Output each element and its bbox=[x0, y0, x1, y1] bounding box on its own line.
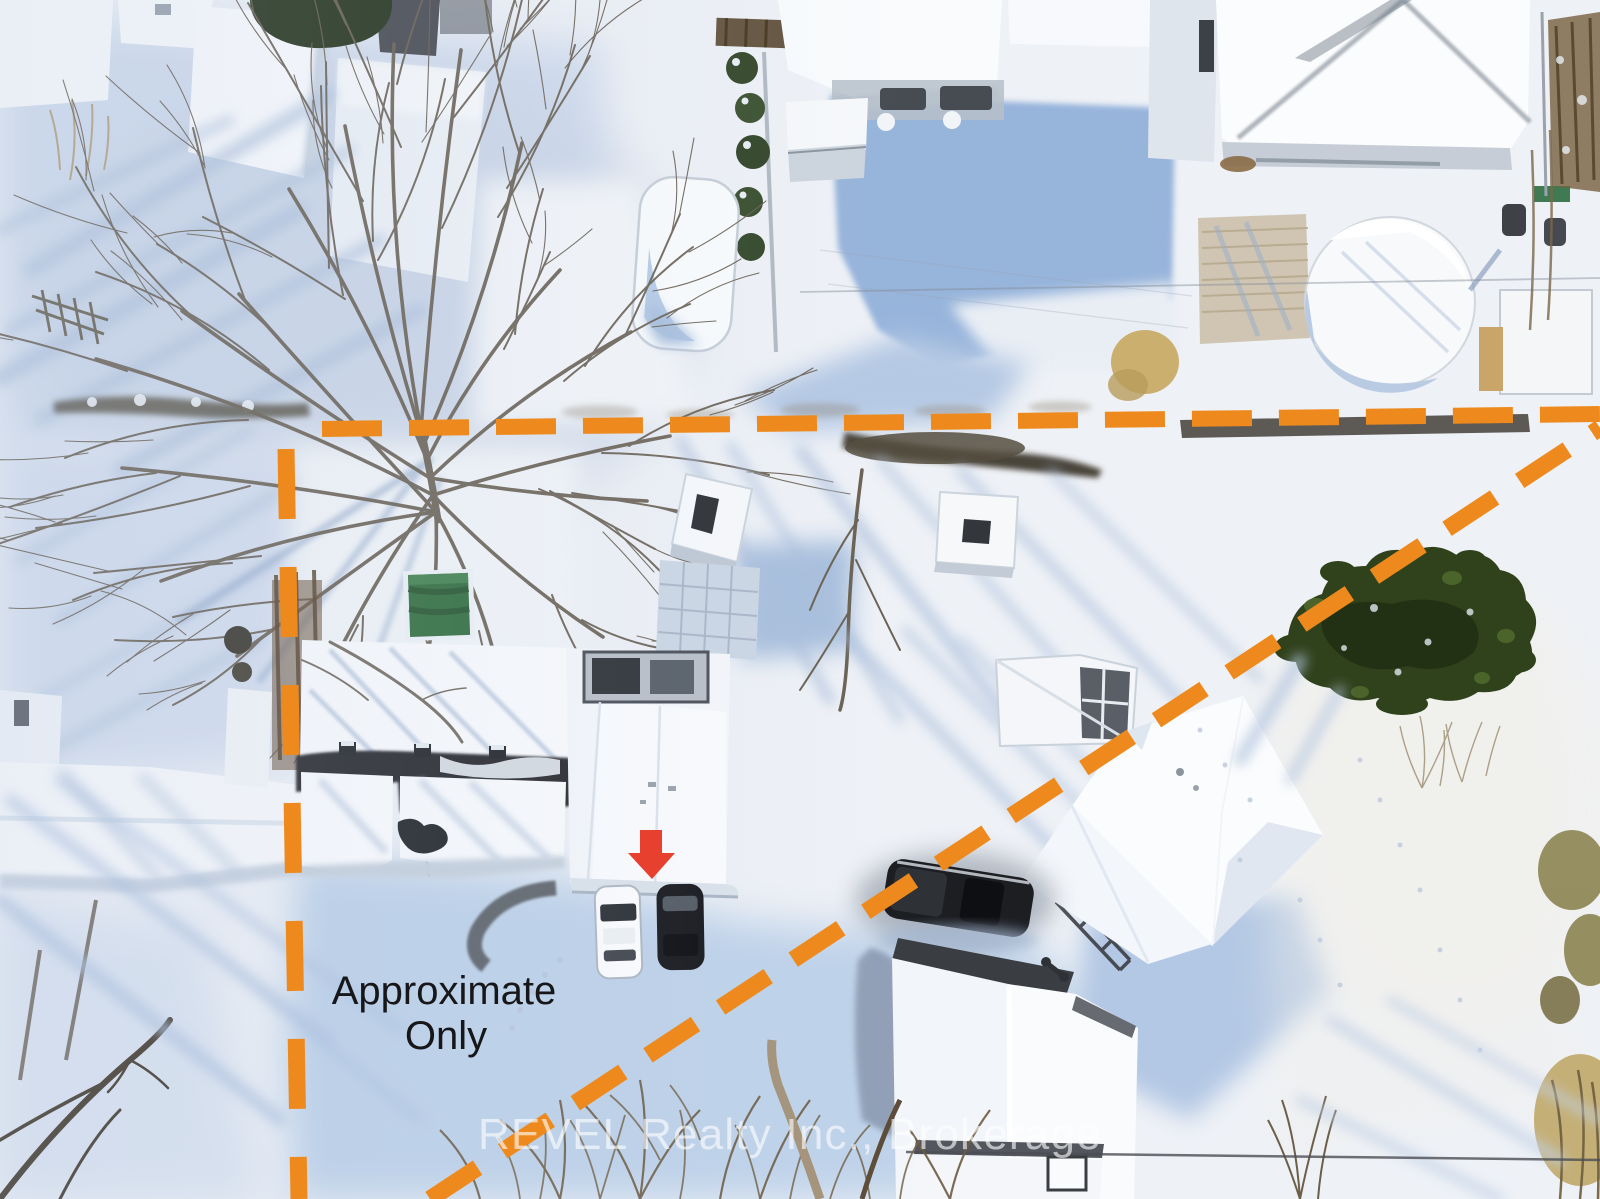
svg-text:Only: Only bbox=[405, 1014, 487, 1058]
svg-text:Approximate: Approximate bbox=[332, 969, 557, 1013]
svg-text:REVEL Realty Inc., Brokerage: REVEL Realty Inc., Brokerage bbox=[478, 1110, 1102, 1159]
